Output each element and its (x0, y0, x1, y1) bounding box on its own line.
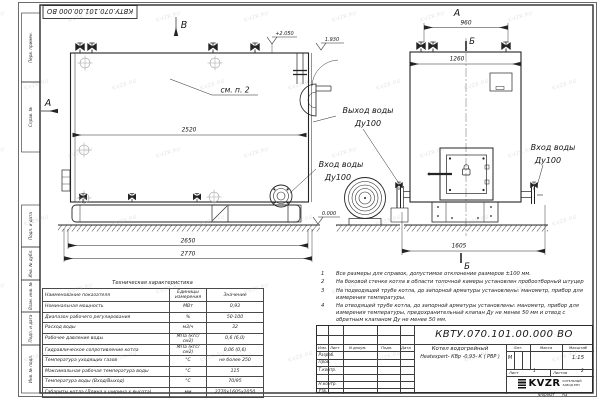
spec-cell: % (170, 312, 207, 323)
format-label: Формат (538, 393, 555, 397)
spec-cell: 50-100 (207, 312, 264, 323)
crosshair-icon (77, 143, 92, 158)
table-row: Расход водым3/ч32 (43, 323, 264, 334)
view-label-front-top: В (181, 20, 188, 31)
sheet-value: 1 (533, 370, 536, 374)
tb-col-header: Подп. (381, 346, 393, 350)
lit-value: М (506, 356, 514, 361)
kvzr-logo-icon (518, 379, 526, 389)
spec-cell: Габариты котла (Длина х ширина х высота) (43, 387, 170, 398)
spec-cell: Температура воды (Вход/Выход) (43, 377, 170, 388)
valve-icon (76, 43, 84, 53)
table-row: Габариты котла (Длина х ширина х высота)… (43, 387, 264, 398)
dim-side-nozzles: 960 (460, 21, 471, 27)
boiler-door (428, 148, 493, 200)
spec-cell: 70/95 (207, 377, 264, 388)
valve-icon (417, 42, 425, 52)
spec-cell: Диапазон рабочего регулирования (43, 312, 170, 323)
blower-fan (345, 178, 386, 226)
margin-label: Подп. и дата (28, 212, 33, 240)
note-text: На подводящей трубе котла, до запорной а… (336, 288, 590, 302)
spec-cell: Номинальная мощность (43, 302, 170, 313)
margin-label: Подп. и дата (28, 314, 33, 342)
tb-row-label: Утв. (319, 389, 328, 393)
notes-list: 1 Все размеры для справок, допустимое от… (318, 271, 590, 325)
corner-stamp-number: КВТУ.070.101.00.000 ВО (46, 7, 133, 15)
spec-cell: °С (170, 377, 207, 388)
spec-cell: 2770х1605х2050 (207, 387, 264, 398)
corner-stamp: КВТУ.070.101.00.000 ВО (43, 6, 137, 19)
center-marks (77, 56, 223, 206)
table-row: Рабочее давление водыМПа (кгс/см2)0,6 (6… (43, 333, 264, 344)
margin-label: Перв. примен. (28, 32, 33, 63)
note-text: Все размеры для справок, допустимое откл… (336, 271, 590, 278)
scale-value: 1:15 (562, 356, 594, 362)
title-block: Изм. Лист N докум. Подп. Дата Разраб. Пр… (316, 325, 593, 393)
note-number: 4 (318, 303, 336, 324)
spec-cell: МВт (170, 302, 207, 313)
view-label-front-left: А (44, 98, 52, 109)
valve-icon (88, 43, 96, 53)
water-inlet-front-dn: Ду100 (324, 173, 351, 182)
tb-row-label: Т.контр. (319, 368, 337, 372)
spec-cell: Гидравлическое сопротивление котла (43, 344, 170, 355)
lit-label: Лит. (506, 346, 530, 350)
valve-icon (251, 43, 259, 53)
elev-ground: 0.000 (322, 211, 336, 217)
table-row: Диапазон рабочего регулирования%50-100 (43, 312, 264, 323)
note-number: 3 (318, 288, 336, 302)
spec-table-section: Техническая характеристика Наименование … (42, 281, 263, 398)
crosshair-icon (208, 56, 223, 71)
crosshair-icon (77, 191, 92, 206)
list-item: 4 На отводящей трубе котла, до запорной … (318, 303, 590, 324)
valve-icon (128, 194, 135, 203)
kvzr-logo-text: KVZR (528, 379, 560, 389)
spec-cell: МПа (кгс/см2) (170, 344, 207, 355)
drawing-sheet: Перв. примен. Справ. № Подп. и дата Инв.… (0, 0, 600, 400)
side-view (391, 38, 543, 236)
spec-header: Единицы измерения (170, 289, 207, 302)
spec-header: Значение (207, 289, 264, 302)
company-line: ЗАВОД РЭП (563, 384, 582, 388)
list-item: 3 На подводящей трубе котла, до запорной… (318, 288, 590, 302)
spec-cell: 0,6 (6,0) (207, 333, 264, 344)
spec-cell: мм (170, 387, 207, 398)
list-item: 1 Все размеры для справок, допустимое от… (318, 271, 590, 278)
valve-icon (429, 42, 437, 52)
spec-table-title: Техническая характеристика (42, 281, 263, 286)
company-name: КОТЕЛЬНЫЙ ЗАВОД РЭП (563, 380, 582, 387)
padlock-icon (463, 165, 471, 175)
spec-cell: м3/ч (170, 323, 207, 334)
spec-cell: Максимальная рабочая температура воды (43, 366, 170, 377)
spec-table: Наименование показателя Единицы измерени… (42, 288, 264, 398)
note-number: 2 (318, 279, 336, 286)
view-label-side-top: А (453, 8, 461, 19)
dim-front-inner: 2520 (182, 128, 197, 134)
tb-col-header: Лист (330, 346, 340, 350)
mass-label: Масса (530, 346, 562, 350)
tb-row-label: Разраб. (319, 353, 335, 357)
product-model: Heatexpert- КВр -0,93- К ( РВР ) (414, 355, 506, 361)
spec-cell: °С (170, 356, 207, 367)
dim-side-width: 1260 (450, 57, 465, 63)
table-row: Гидравлическое сопротивление котлаМПа (к… (43, 344, 264, 355)
water-inlet-side-dn: Ду100 (534, 156, 561, 165)
spec-cell: не более 250 (207, 356, 264, 367)
list-item: 2 На боковой стенке котла в области топо… (318, 279, 590, 286)
table-header-row: Наименование показателя Единицы измерени… (43, 289, 264, 302)
crosshair-icon (78, 56, 93, 71)
format-value: А3 (562, 393, 568, 397)
spec-cell: 115 (207, 366, 264, 377)
tb-col-header: Дата (401, 346, 411, 350)
tb-col-header: Изм. (318, 346, 327, 350)
table-row: Максимальная рабочая температура воды°С1… (43, 366, 264, 377)
table-row: Температура воды (Вход/Выход)°С70/95 (43, 377, 264, 388)
tb-row-label: Пров. (319, 360, 331, 364)
ground-line (58, 225, 548, 232)
scale-label: Масштаб (562, 346, 594, 350)
table-row: Номинальная мощностьМВт0,93 (43, 302, 264, 313)
spec-cell: МПа (кгс/см2) (170, 333, 207, 344)
table-row: Температура уходящих газов°Сне более 250 (43, 356, 264, 367)
valve-icon (209, 43, 217, 53)
sheet-label: Лист (509, 371, 519, 375)
water-inlet-side-label: Вход воды (531, 143, 576, 152)
dim-front-base: 2650 (181, 239, 196, 245)
spec-cell: Рабочее давление воды (43, 333, 170, 344)
margin-label: Взам. инв. № (28, 281, 33, 310)
note-number: 1 (318, 271, 336, 278)
product-name: Котел водогрейный (414, 346, 506, 352)
margin-label: Инв. № дубл. (28, 249, 33, 277)
water-outlet-label: Выход воды (343, 106, 394, 115)
spec-cell: 32 (207, 323, 264, 334)
margin-label: Инв. № подл. (28, 355, 33, 383)
tb-row-label: Н.контр. (319, 382, 337, 386)
spec-header: Наименование показателя (43, 289, 170, 302)
company-cell: KVZR КОТЕЛЬНЫЙ ЗАВОД РЭП (506, 376, 594, 392)
elev-outlet: 1.930 (325, 37, 339, 43)
tb-col-header: N докум. (349, 346, 367, 350)
spec-cell: °С (170, 366, 207, 377)
note-text: На отводящей трубе котла, до запорной ар… (336, 303, 590, 324)
valve-icon (502, 42, 510, 52)
margin-label: Справ. № (28, 106, 33, 127)
format-strip: Формат А3 (538, 393, 568, 397)
valve-icon (193, 194, 200, 203)
section-label-top: Б (469, 37, 475, 47)
callout-note: см. п. 2 (221, 86, 250, 95)
water-inlet-front-label: Вход воды (319, 160, 364, 169)
water-outlet-dn: Ду100 (354, 119, 381, 128)
sheets-label: Листов (553, 371, 567, 375)
dim-front-overall: 2770 (181, 252, 196, 258)
spec-cell: 0,93 (207, 302, 264, 313)
spec-cell: 0,06 (0,6) (207, 344, 264, 355)
note-text: На боковой стенке котла в области топочн… (336, 279, 590, 286)
dim-side-depth: 1605 (452, 244, 467, 250)
spec-cell: Расход воды (43, 323, 170, 334)
elev-top: +2.050 (275, 31, 294, 37)
spec-cell: Температура уходящих газов (43, 356, 170, 367)
doc-number: КВТУ.070.101.00.000 ВО (414, 329, 594, 340)
sheets-value: 2 (581, 370, 584, 374)
